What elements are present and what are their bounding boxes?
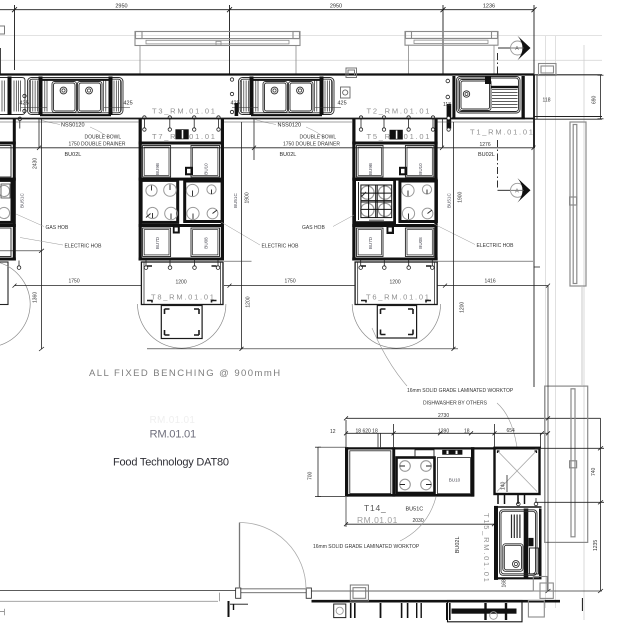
- svg-text:18 620 18: 18 620 18: [356, 428, 378, 434]
- svg-text:T14_: T14_: [364, 503, 387, 513]
- svg-text:ELECTRIC HOB: ELECTRIC HOB: [477, 243, 515, 249]
- svg-text:ELECTRIC HOB: ELECTRIC HOB: [65, 243, 103, 249]
- svg-text:2030: 2030: [413, 518, 424, 524]
- svg-text:118: 118: [443, 102, 451, 108]
- svg-text:ALL FIXED BENCHING @ 900mmH: ALL FIXED BENCHING @ 900mmH: [89, 368, 282, 379]
- svg-text:1750 DOUBLE DRAINER: 1750 DOUBLE DRAINER: [69, 142, 126, 148]
- svg-text:A: A: [515, 46, 519, 52]
- svg-text:425: 425: [338, 101, 347, 107]
- svg-text:GAS HOB: GAS HOB: [302, 225, 325, 231]
- svg-text:1200: 1200: [459, 302, 465, 313]
- svg-text:T1_RM.01.01: T1_RM.01.01: [470, 128, 535, 137]
- svg-text:1236: 1236: [483, 3, 495, 9]
- svg-text:T15_RM.01.01: T15_RM.01.01: [482, 513, 491, 584]
- svg-text:BU10: BU10: [418, 163, 423, 175]
- svg-text:1276: 1276: [480, 142, 491, 148]
- svg-text:NSS0120: NSS0120: [278, 123, 302, 129]
- svg-text:140: 140: [501, 481, 507, 490]
- svg-text:ELECTRIC HOB: ELECTRIC HOB: [262, 243, 300, 249]
- svg-text:BU02L: BU02L: [455, 536, 461, 553]
- svg-text:BU08: BU08: [418, 237, 423, 249]
- svg-text:Food Technology DAT80: Food Technology DAT80: [113, 456, 229, 468]
- svg-text:700: 700: [308, 471, 314, 480]
- svg-text:BU51C: BU51C: [20, 193, 25, 208]
- svg-text:16mm SOLID GRADE LAMINATED WOR: 16mm SOLID GRADE LAMINATED WORKTOP: [407, 388, 514, 394]
- svg-text:1200: 1200: [390, 279, 401, 285]
- svg-text:1360: 1360: [33, 292, 39, 303]
- svg-text:T3_RM.01.01: T3_RM.01.01: [152, 107, 217, 116]
- svg-text:RM.01.01: RM.01.01: [357, 515, 398, 525]
- svg-text:BU7D: BU7D: [368, 236, 373, 249]
- svg-text:BU10: BU10: [449, 478, 461, 483]
- svg-text:BU9B: BU9B: [368, 163, 373, 175]
- svg-text:T2_RM.01.01: T2_RM.01.01: [367, 107, 432, 116]
- svg-text:1200: 1200: [176, 279, 187, 285]
- svg-text:740: 740: [591, 467, 597, 476]
- svg-text:1750 DOUBLE DRAINER: 1750 DOUBLE DRAINER: [283, 142, 340, 148]
- svg-text:425: 425: [124, 101, 133, 107]
- svg-text:BU51C: BU51C: [447, 193, 452, 208]
- svg-text:425: 425: [20, 101, 29, 107]
- svg-text:NSS0120: NSS0120: [61, 123, 85, 129]
- svg-text:T8_RM.01.01: T8_RM.01.01: [151, 293, 216, 302]
- svg-text:654: 654: [507, 428, 516, 434]
- svg-text:BU7D: BU7D: [155, 236, 160, 249]
- svg-text:A: A: [515, 188, 519, 194]
- svg-text:1900: 1900: [245, 192, 251, 203]
- svg-text:168: 168: [502, 579, 508, 588]
- svg-text:BU02L: BU02L: [478, 152, 495, 158]
- svg-text:2430: 2430: [33, 158, 39, 169]
- svg-text:1900: 1900: [457, 191, 463, 202]
- svg-text:1235: 1235: [593, 540, 599, 551]
- svg-text:BU02L: BU02L: [280, 152, 297, 158]
- svg-text:1750: 1750: [69, 279, 80, 285]
- svg-text:BU10: BU10: [204, 163, 209, 175]
- svg-text:T6_RM.01.01: T6_RM.01.01: [366, 293, 431, 302]
- svg-text:118: 118: [543, 98, 551, 104]
- svg-text:DOUBLE BOWL: DOUBLE BOWL: [85, 134, 122, 140]
- svg-text:690: 690: [592, 95, 598, 104]
- svg-text:1390: 1390: [438, 428, 449, 434]
- svg-text:1416: 1416: [485, 278, 496, 284]
- svg-text:1750: 1750: [285, 279, 296, 285]
- svg-text:BU02L: BU02L: [65, 152, 82, 158]
- svg-text:1200: 1200: [246, 296, 252, 307]
- svg-text:2730: 2730: [438, 413, 449, 419]
- svg-text:16mm SOLID GRADE LAMINATED WOR: 16mm SOLID GRADE LAMINATED WORKTOP: [313, 544, 420, 550]
- svg-text:2950: 2950: [330, 3, 342, 9]
- svg-text:12: 12: [330, 429, 336, 435]
- svg-text:DOUBLE BOWL: DOUBLE BOWL: [300, 134, 337, 140]
- svg-text:RM.01.01: RM.01.01: [150, 415, 196, 426]
- svg-text:BU9B: BU9B: [155, 163, 160, 175]
- svg-text:DISHWASHER BY OTHERS: DISHWASHER BY OTHERS: [423, 401, 488, 407]
- svg-text:BU08: BU08: [204, 237, 209, 249]
- svg-text:18: 18: [464, 428, 470, 434]
- svg-text:GAS HOB: GAS HOB: [46, 225, 69, 231]
- svg-text:BU51C: BU51C: [233, 193, 238, 208]
- svg-text:RM.01.01: RM.01.01: [150, 429, 197, 441]
- svg-text:2950: 2950: [115, 3, 127, 9]
- svg-text:BU51C: BU51C: [406, 506, 424, 512]
